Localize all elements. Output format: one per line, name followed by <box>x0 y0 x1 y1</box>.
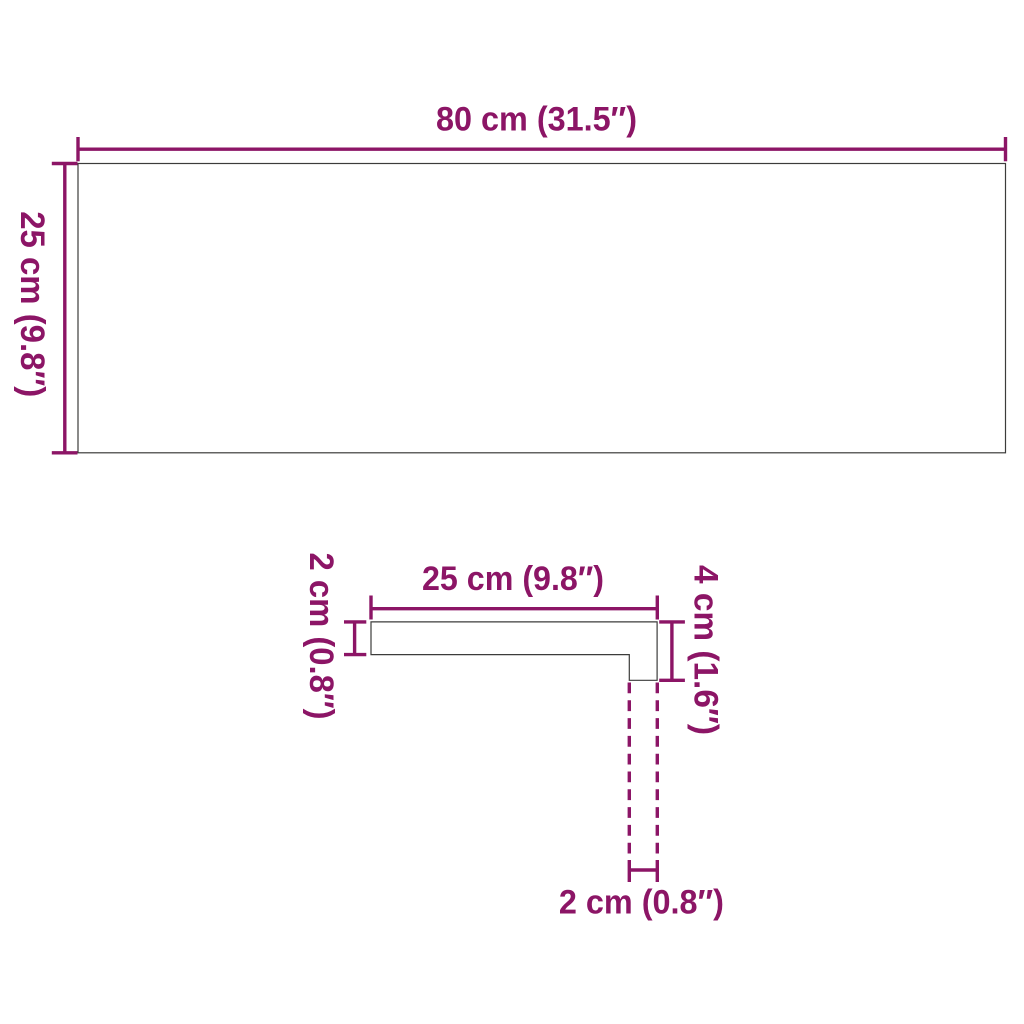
svg-text:2 cm (0.8″): 2 cm (0.8″) <box>559 883 724 921</box>
svg-text:25 cm (9.8″): 25 cm (9.8″) <box>13 211 51 397</box>
svg-text:4 cm (1.6″): 4 cm (1.6″) <box>687 565 725 735</box>
svg-text:25 cm (9.8″): 25 cm (9.8″) <box>422 560 604 598</box>
svg-text:2 cm (0.8″): 2 cm (0.8″) <box>302 553 340 720</box>
svg-text:80 cm (31.5″): 80 cm (31.5″) <box>436 101 637 139</box>
